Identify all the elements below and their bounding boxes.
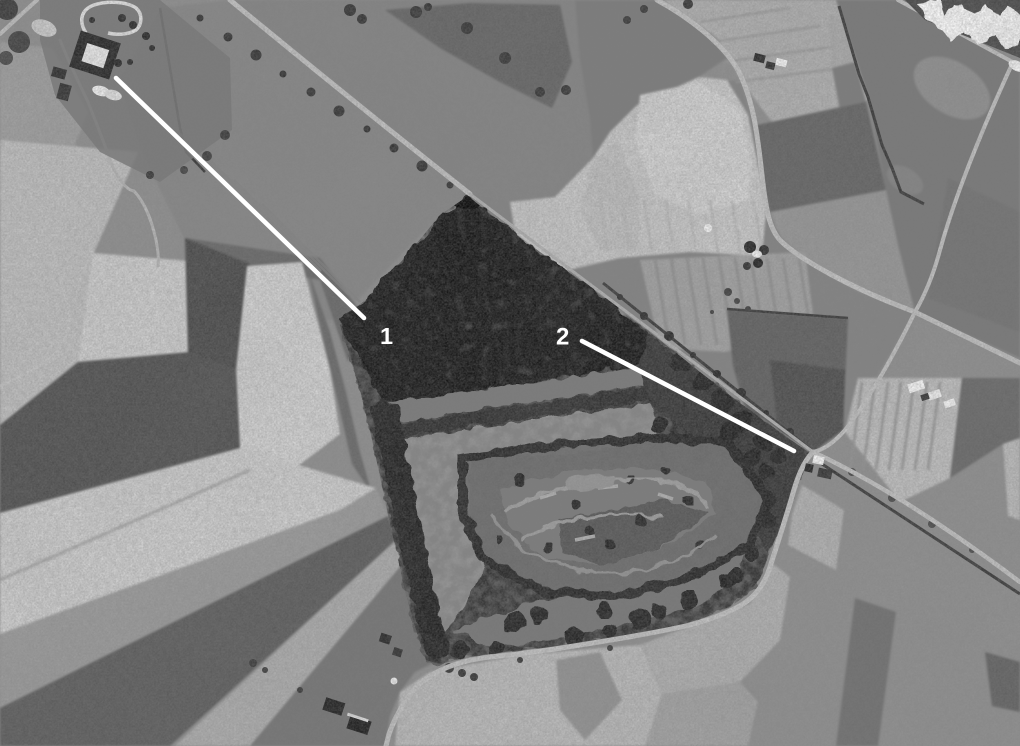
- svg-text:1: 1: [380, 323, 393, 349]
- svg-text:2: 2: [556, 324, 569, 351]
